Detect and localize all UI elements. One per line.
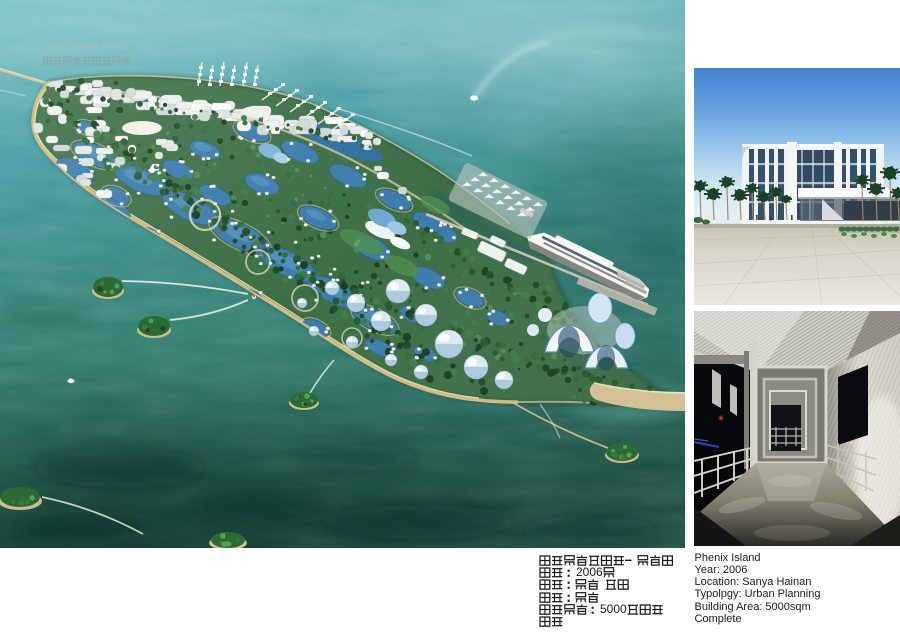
svg-text:5000: 5000 xyxy=(600,603,627,616)
svg-text:2006: 2006 xyxy=(576,566,603,579)
